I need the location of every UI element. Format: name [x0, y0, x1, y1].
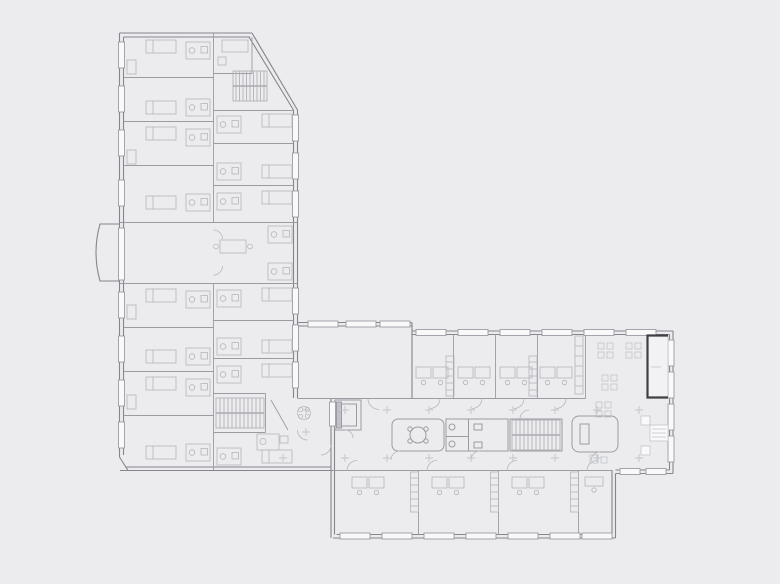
- stairs: [216, 71, 560, 450]
- floor-plan-drawing: [0, 0, 780, 584]
- furniture-north: [127, 40, 311, 465]
- interior-walls: [120, 33, 612, 535]
- windows: [119, 42, 675, 539]
- outer-walls: [96, 33, 673, 538]
- lounge-furniture: [590, 336, 668, 464]
- floor-plan-page: [0, 0, 780, 584]
